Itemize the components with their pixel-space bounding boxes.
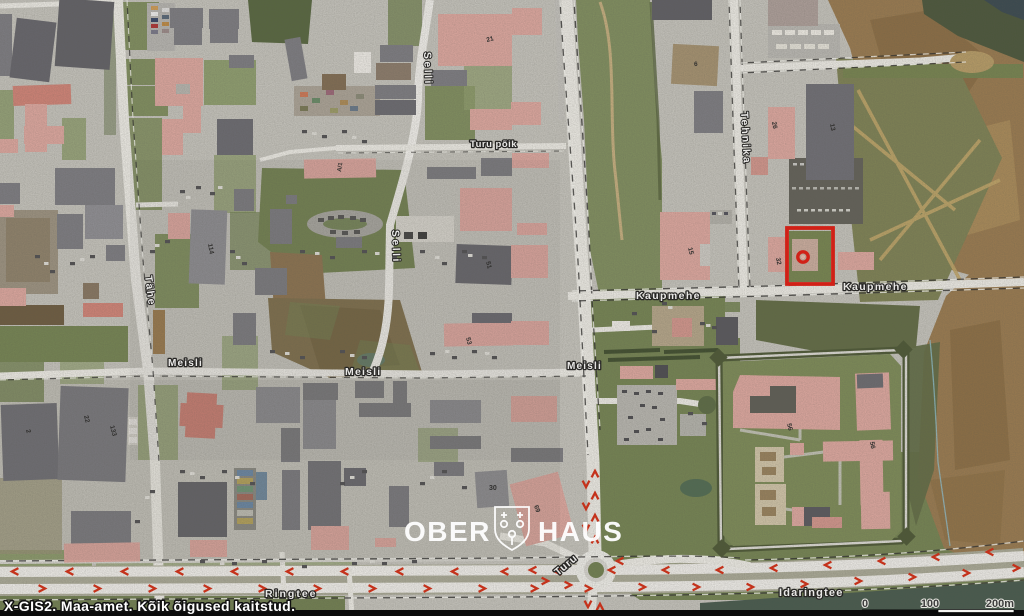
- svg-text:0: 0: [862, 598, 868, 610]
- svg-text:X-GIS2. Maa-amet. Kõik õigused: X-GIS2. Maa-amet. Kõik õigused kaitstud.: [4, 598, 295, 614]
- svg-text:200m: 200m: [986, 598, 1014, 610]
- svg-text:100: 100: [921, 598, 939, 610]
- svg-text:HAUS: HAUS: [538, 516, 623, 547]
- svg-text:OBER: OBER: [404, 516, 491, 547]
